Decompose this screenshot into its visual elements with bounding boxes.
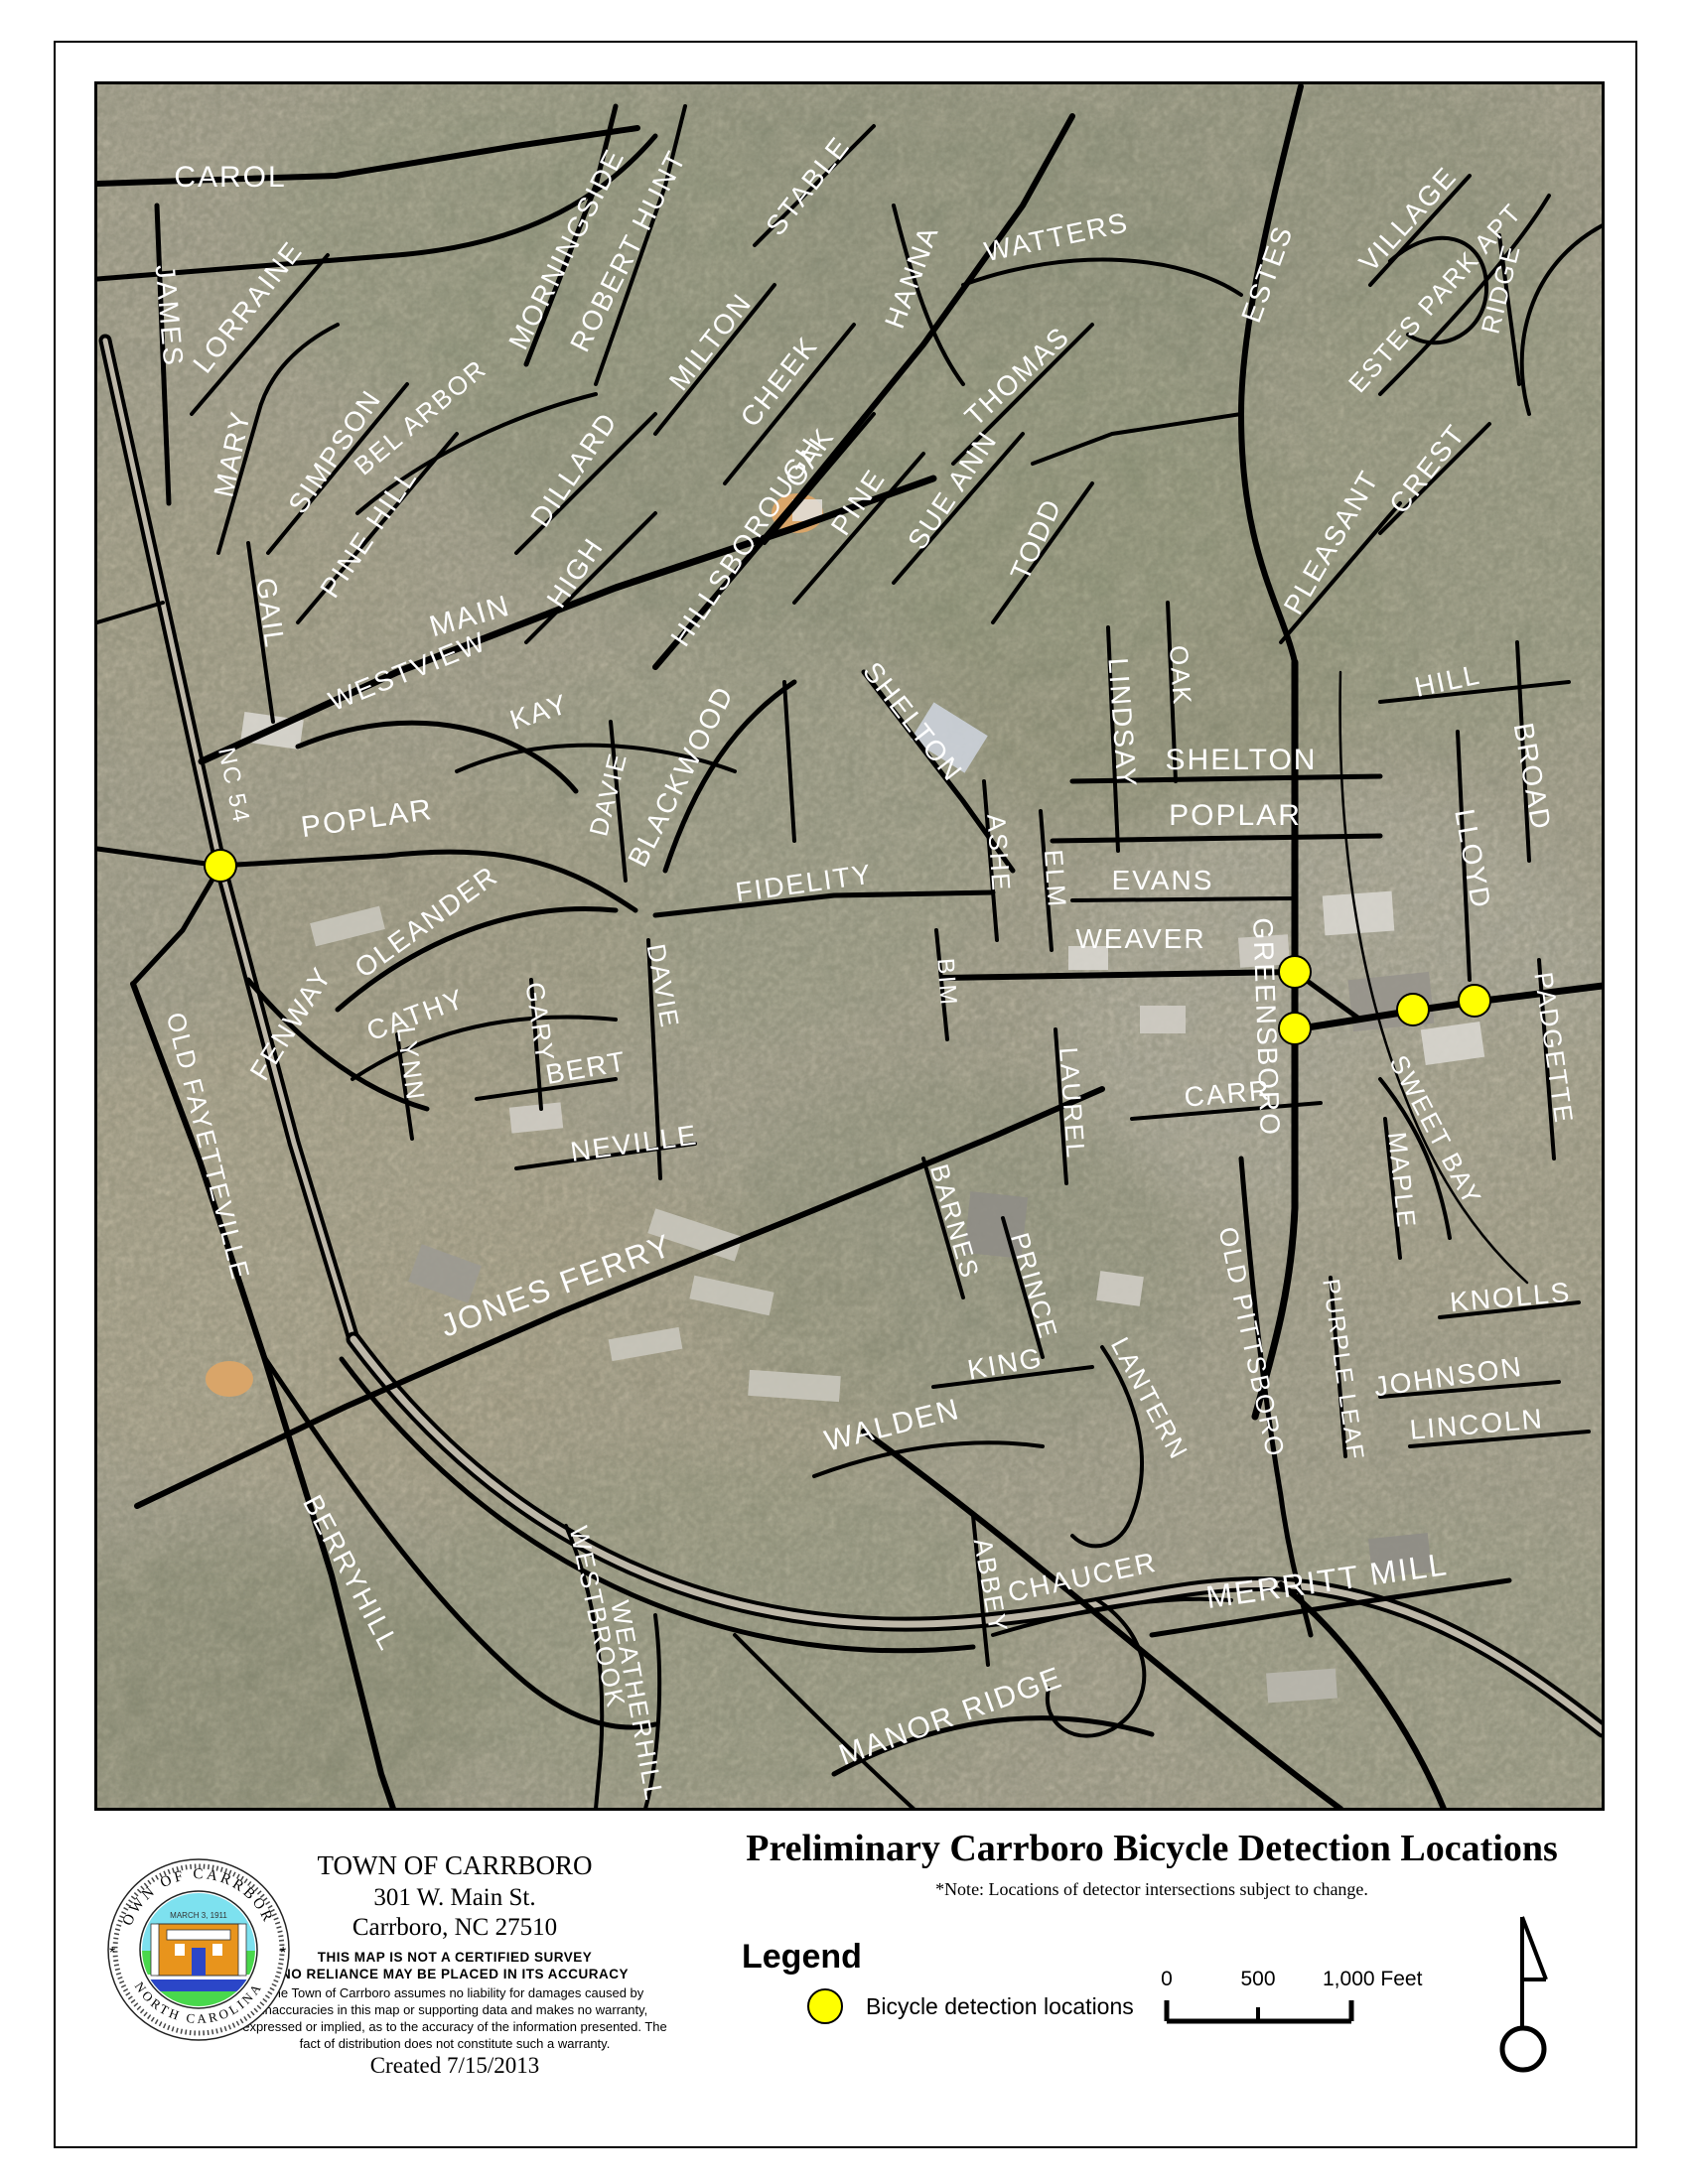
street-label: CAROL bbox=[174, 161, 286, 194]
map-title: Preliminary Carrboro Bicycle Detection L… bbox=[695, 1827, 1609, 1870]
street-label: OAK bbox=[1164, 644, 1197, 707]
disclaimer-bold-line2: NO RELIANCE MAY BE PLACED IN ITS ACCURAC… bbox=[246, 1967, 663, 1981]
detection-marker bbox=[1459, 985, 1490, 1017]
street-label: POPLAR bbox=[1169, 799, 1302, 832]
map-note: *Note: Locations of detector intersectio… bbox=[695, 1879, 1609, 1900]
created-date: Created 7/15/2013 bbox=[276, 2053, 633, 2079]
aerial-map: CAROLJAMESLORRAINEMARYSIMPSONPINE HILLBE… bbox=[94, 81, 1605, 1811]
disclaimer-paragraph: The Town of Carrboro assumes no liabilit… bbox=[236, 1984, 673, 2052]
town-name: TOWN OF CARRBORO bbox=[276, 1850, 633, 1881]
town-address-line2: Carrboro, NC 27510 bbox=[276, 1914, 633, 1942]
street-label: BIM bbox=[931, 957, 961, 1007]
legend-item-label: Bicycle detection locations bbox=[866, 1993, 1134, 2020]
detection-marker bbox=[1279, 1013, 1311, 1044]
street-label: ELM bbox=[1039, 849, 1072, 909]
map-document-page: CAROLJAMESLORRAINEMARYSIMPSONPINE HILLBE… bbox=[0, 0, 1688, 2184]
map-canvas: CAROLJAMESLORRAINEMARYSIMPSONPINE HILLBE… bbox=[97, 84, 1602, 1808]
street-label: ASHE bbox=[981, 813, 1016, 893]
legend-heading: Legend bbox=[742, 1938, 862, 1977]
detection-marker bbox=[1279, 956, 1311, 988]
ballfield bbox=[206, 1361, 253, 1397]
street-line bbox=[1072, 898, 1296, 900]
town-address-line1: 301 W. Main St. bbox=[276, 1884, 633, 1912]
street-label: WEAVER bbox=[1075, 923, 1205, 954]
street-label: EVANS bbox=[1112, 865, 1214, 895]
detection-marker bbox=[1397, 994, 1429, 1025]
disclaimer-bold-line1: THIS MAP IS NOT A CERTIFIED SURVEY bbox=[246, 1950, 663, 1965]
detection-marker bbox=[205, 850, 236, 882]
street-label: SHELTON bbox=[1166, 744, 1318, 776]
